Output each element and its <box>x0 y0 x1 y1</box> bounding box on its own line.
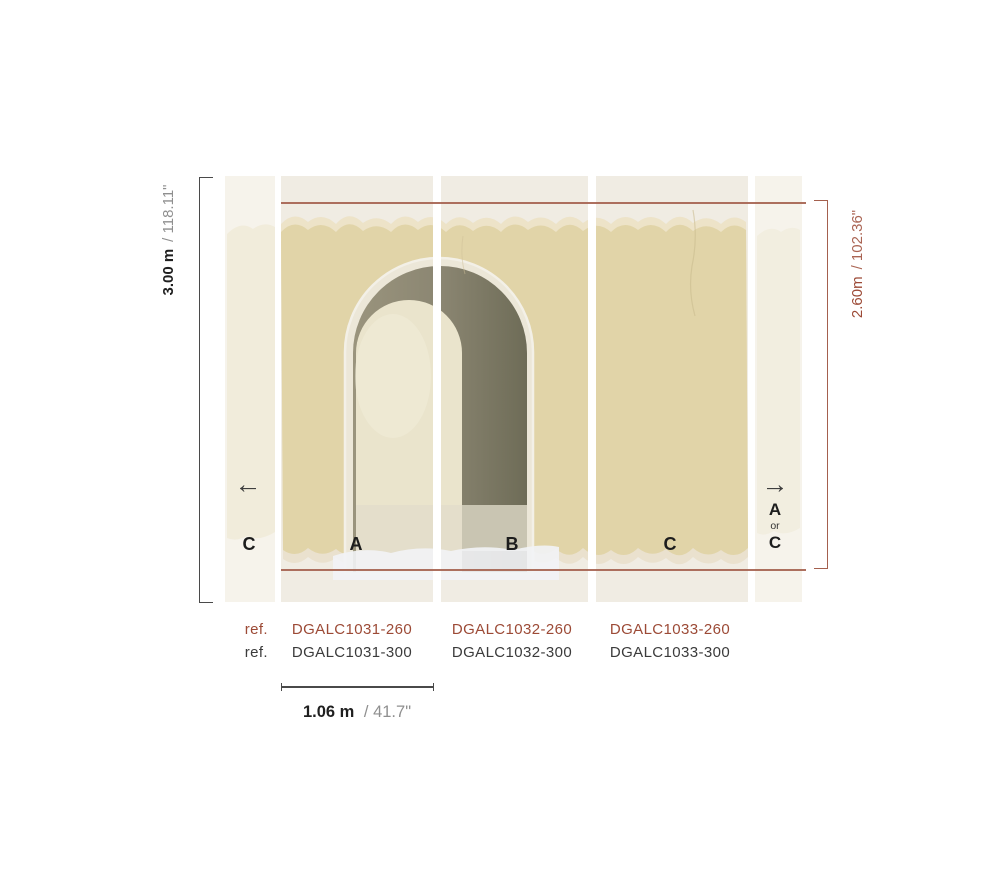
right-arrow-icon: → <box>758 470 792 500</box>
ref-code-260: DGALC1033-260 <box>590 621 750 637</box>
option-c: C <box>756 534 794 551</box>
ref-code-260: DGALC1031-260 <box>272 621 432 637</box>
panel-separator-1 <box>433 176 441 602</box>
panel-label-a: A <box>336 534 376 555</box>
option-a: A <box>756 501 794 518</box>
option-or: or <box>756 521 794 532</box>
panel-separator-2 <box>588 176 596 602</box>
ref-column-2: DGALC1032-260 DGALC1032-300 <box>432 621 592 660</box>
panel-label-left-c: C <box>229 534 269 555</box>
ref-code-300: DGALC1031-300 <box>272 644 432 660</box>
ref-code-300: DGALC1033-300 <box>590 644 750 660</box>
total-height-label: 3.00 m / 118.11" <box>158 140 178 340</box>
variant-height-label: 2.60m / 102.36" <box>847 164 867 364</box>
ref-column-1: DGALC1031-260 DGALC1031-300 <box>272 621 432 660</box>
height-bracket-300 <box>199 177 213 603</box>
panel-label-c: C <box>650 534 690 555</box>
panel-width-measure-line <box>281 683 434 691</box>
total-height-imperial: / 118.11" <box>160 185 177 242</box>
variant-height-metric: 2.60m <box>849 276 866 318</box>
variant-height-imperial: / 102.36" <box>849 210 866 270</box>
ref-column-3: DGALC1033-260 DGALC1033-300 <box>590 621 750 660</box>
total-height-metric: 3.00 m <box>160 249 177 296</box>
panel-width-label: 1.06 m / 41.7" <box>256 703 458 722</box>
crop-line-top <box>281 202 806 204</box>
wallpaper-panel-diagram: 3.00 m / 118.11" 2.60m / 102.36" ← → C A… <box>0 0 1000 886</box>
height-bracket-260 <box>814 200 828 569</box>
ref-label-260: ref. <box>210 621 268 637</box>
panel-width-metric: 1.06 m <box>303 703 354 721</box>
left-arrow-icon: ← <box>231 470 265 500</box>
panel-label-b: B <box>492 534 532 555</box>
ref-code-300: DGALC1032-300 <box>432 644 592 660</box>
panel-width-imperial: / 41.7" <box>364 703 411 721</box>
ref-labels: ref. ref. <box>210 621 268 660</box>
ref-label-300: ref. <box>210 644 268 660</box>
ref-code-260: DGALC1032-260 <box>432 621 592 637</box>
panel-label-a-or-c: A or C <box>756 501 794 551</box>
crop-line-bottom <box>281 569 806 571</box>
